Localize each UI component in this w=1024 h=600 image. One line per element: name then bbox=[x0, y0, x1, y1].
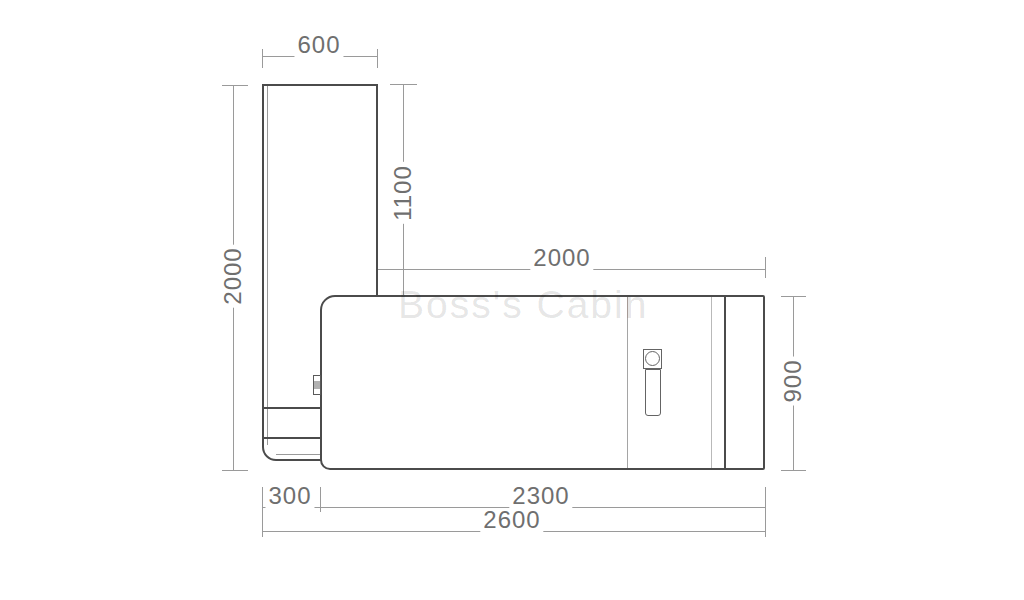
extension-tick bbox=[781, 470, 806, 471]
dim-label: 600 bbox=[294, 33, 343, 57]
dim-label: 900 bbox=[781, 356, 805, 405]
dim-label: 2000 bbox=[530, 246, 593, 270]
watermark-text: Boss's Cabin bbox=[398, 283, 648, 327]
extension-tick bbox=[765, 487, 766, 537]
extension-tick bbox=[377, 49, 378, 68]
extension-tick bbox=[390, 84, 417, 85]
extension-tick bbox=[765, 257, 766, 278]
extension-tick bbox=[781, 296, 806, 297]
extension-tick bbox=[320, 487, 321, 512]
dim-label: 300 bbox=[265, 484, 314, 508]
dim-label: 1100 bbox=[391, 162, 415, 224]
technical-drawing-canvas: Boss's Cabin 600 1100 2000 2000 bbox=[0, 0, 1024, 600]
extension-tick bbox=[222, 470, 248, 471]
extension-tick bbox=[222, 85, 248, 86]
extension-tick bbox=[262, 487, 263, 537]
dim-label: 2600 bbox=[480, 508, 543, 532]
dim-label: 2000 bbox=[221, 244, 245, 307]
extension-tick bbox=[262, 49, 263, 68]
dim-label: 2300 bbox=[509, 484, 572, 508]
